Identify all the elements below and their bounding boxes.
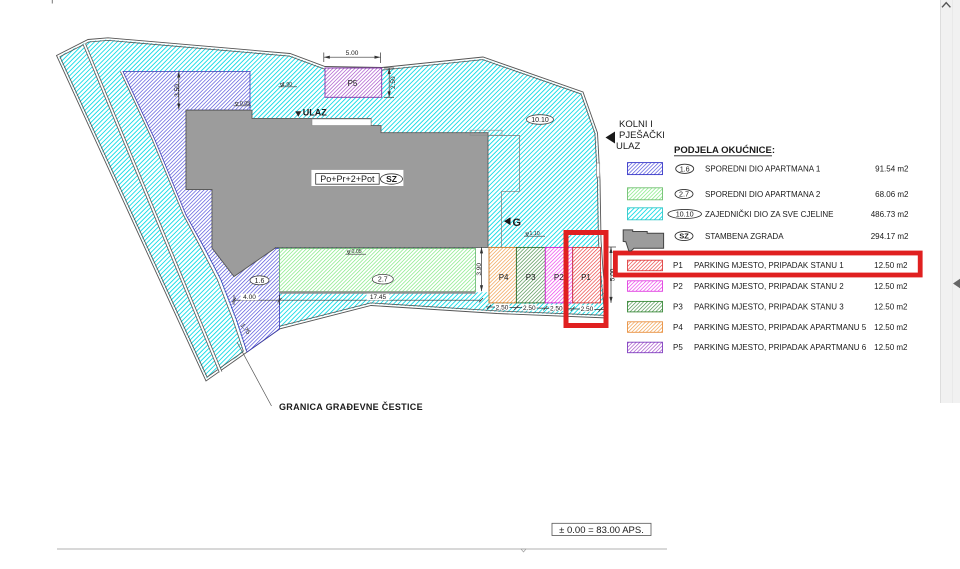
svg-text:10.10: 10.10 — [531, 117, 549, 124]
svg-text:2.7: 2.7 — [679, 190, 689, 199]
svg-text:P5: P5 — [673, 343, 683, 352]
svg-text:PJEŠAČKI: PJEŠAČKI — [619, 130, 665, 141]
svg-text:4.00: 4.00 — [243, 294, 256, 301]
svg-text:2.50: 2.50 — [523, 305, 536, 312]
svg-text:KOLNI I: KOLNI I — [619, 119, 653, 130]
svg-text:10.10: 10.10 — [676, 210, 694, 219]
svg-text:P3: P3 — [673, 302, 683, 311]
svg-text:Po+Pr+2+Pot: Po+Pr+2+Pot — [320, 174, 375, 184]
svg-text:294.17 m2: 294.17 m2 — [871, 232, 909, 241]
svg-text:2.50: 2.50 — [581, 306, 594, 313]
svg-text:SZ: SZ — [386, 174, 397, 184]
svg-text:12.50 m2: 12.50 m2 — [874, 343, 908, 352]
svg-text:1.6: 1.6 — [255, 278, 265, 285]
svg-text:5.00: 5.00 — [346, 50, 359, 57]
svg-text:68.06 m2: 68.06 m2 — [875, 190, 909, 199]
svg-text:P1: P1 — [673, 261, 683, 270]
svg-text:P3: P3 — [526, 273, 536, 282]
svg-text:2.50: 2.50 — [550, 305, 563, 312]
svg-text:PARKING MJESTO, PRIPADAK STANU: PARKING MJESTO, PRIPADAK STANU 1 — [694, 261, 844, 270]
svg-text:± 0.00 = 83.00 APS.: ± 0.00 = 83.00 APS. — [559, 525, 644, 536]
svg-text:3.50: 3.50 — [174, 84, 181, 97]
svg-text:PARKING MJESTO, PRIPADAK STANU: PARKING MJESTO, PRIPADAK STANU 3 — [694, 302, 844, 311]
svg-text:SZ: SZ — [679, 232, 689, 241]
svg-text:P5: P5 — [348, 79, 358, 88]
svg-text:ULAZ: ULAZ — [303, 107, 327, 117]
svg-text:2.50: 2.50 — [496, 304, 509, 311]
svg-text:2.7: 2.7 — [378, 277, 388, 284]
svg-text:P1: P1 — [581, 273, 591, 282]
svg-text:PARKING MJESTO, PRIPADAK APART: PARKING MJESTO, PRIPADAK APARTMANU 5 — [694, 323, 867, 332]
svg-text:GRANICA GRAĐEVNE ČESTICE: GRANICA GRAĐEVNE ČESTICE — [279, 401, 423, 412]
svg-text:P4: P4 — [499, 273, 509, 282]
svg-text:P2: P2 — [673, 282, 683, 291]
svg-text:P4: P4 — [673, 323, 683, 332]
svg-text:PARKING MJESTO, PRIPADAK STANU: PARKING MJESTO, PRIPADAK STANU 2 — [694, 282, 844, 291]
svg-text:3.90: 3.90 — [476, 263, 483, 276]
svg-text:91.54 m2: 91.54 m2 — [875, 165, 909, 174]
svg-text:12.50 m2: 12.50 m2 — [874, 282, 908, 291]
svg-text:SPOREDNI DIO APARTMANA 2: SPOREDNI DIO APARTMANA 2 — [705, 190, 821, 199]
svg-text:12.50 m2: 12.50 m2 — [874, 302, 908, 311]
svg-text:G: G — [513, 217, 522, 229]
svg-text:P2: P2 — [554, 273, 564, 282]
svg-text:ZAJEDNIČKI DIO ZA SVE CJELINE: ZAJEDNIČKI DIO ZA SVE CJELINE — [705, 210, 833, 219]
svg-text:1.6: 1.6 — [680, 164, 690, 173]
svg-text:12.50 m2: 12.50 m2 — [874, 261, 908, 270]
svg-text:12.50 m2: 12.50 m2 — [874, 323, 908, 332]
svg-text:2.50: 2.50 — [390, 76, 397, 89]
svg-text:486.73 m2: 486.73 m2 — [871, 210, 909, 219]
svg-text:ULAZ: ULAZ — [616, 141, 640, 152]
svg-text:17.45: 17.45 — [370, 294, 387, 301]
svg-text:PODJELA OKUĆNICE:: PODJELA OKUĆNICE: — [674, 144, 775, 156]
svg-text:STAMBENA ZGRADA: STAMBENA ZGRADA — [705, 232, 784, 241]
svg-text:SPOREDNI DIO APARTMANA 1: SPOREDNI DIO APARTMANA 1 — [705, 165, 821, 174]
svg-text:PARKING MJESTO, PRIPADAK APART: PARKING MJESTO, PRIPADAK APARTMANU 6 — [694, 343, 867, 352]
